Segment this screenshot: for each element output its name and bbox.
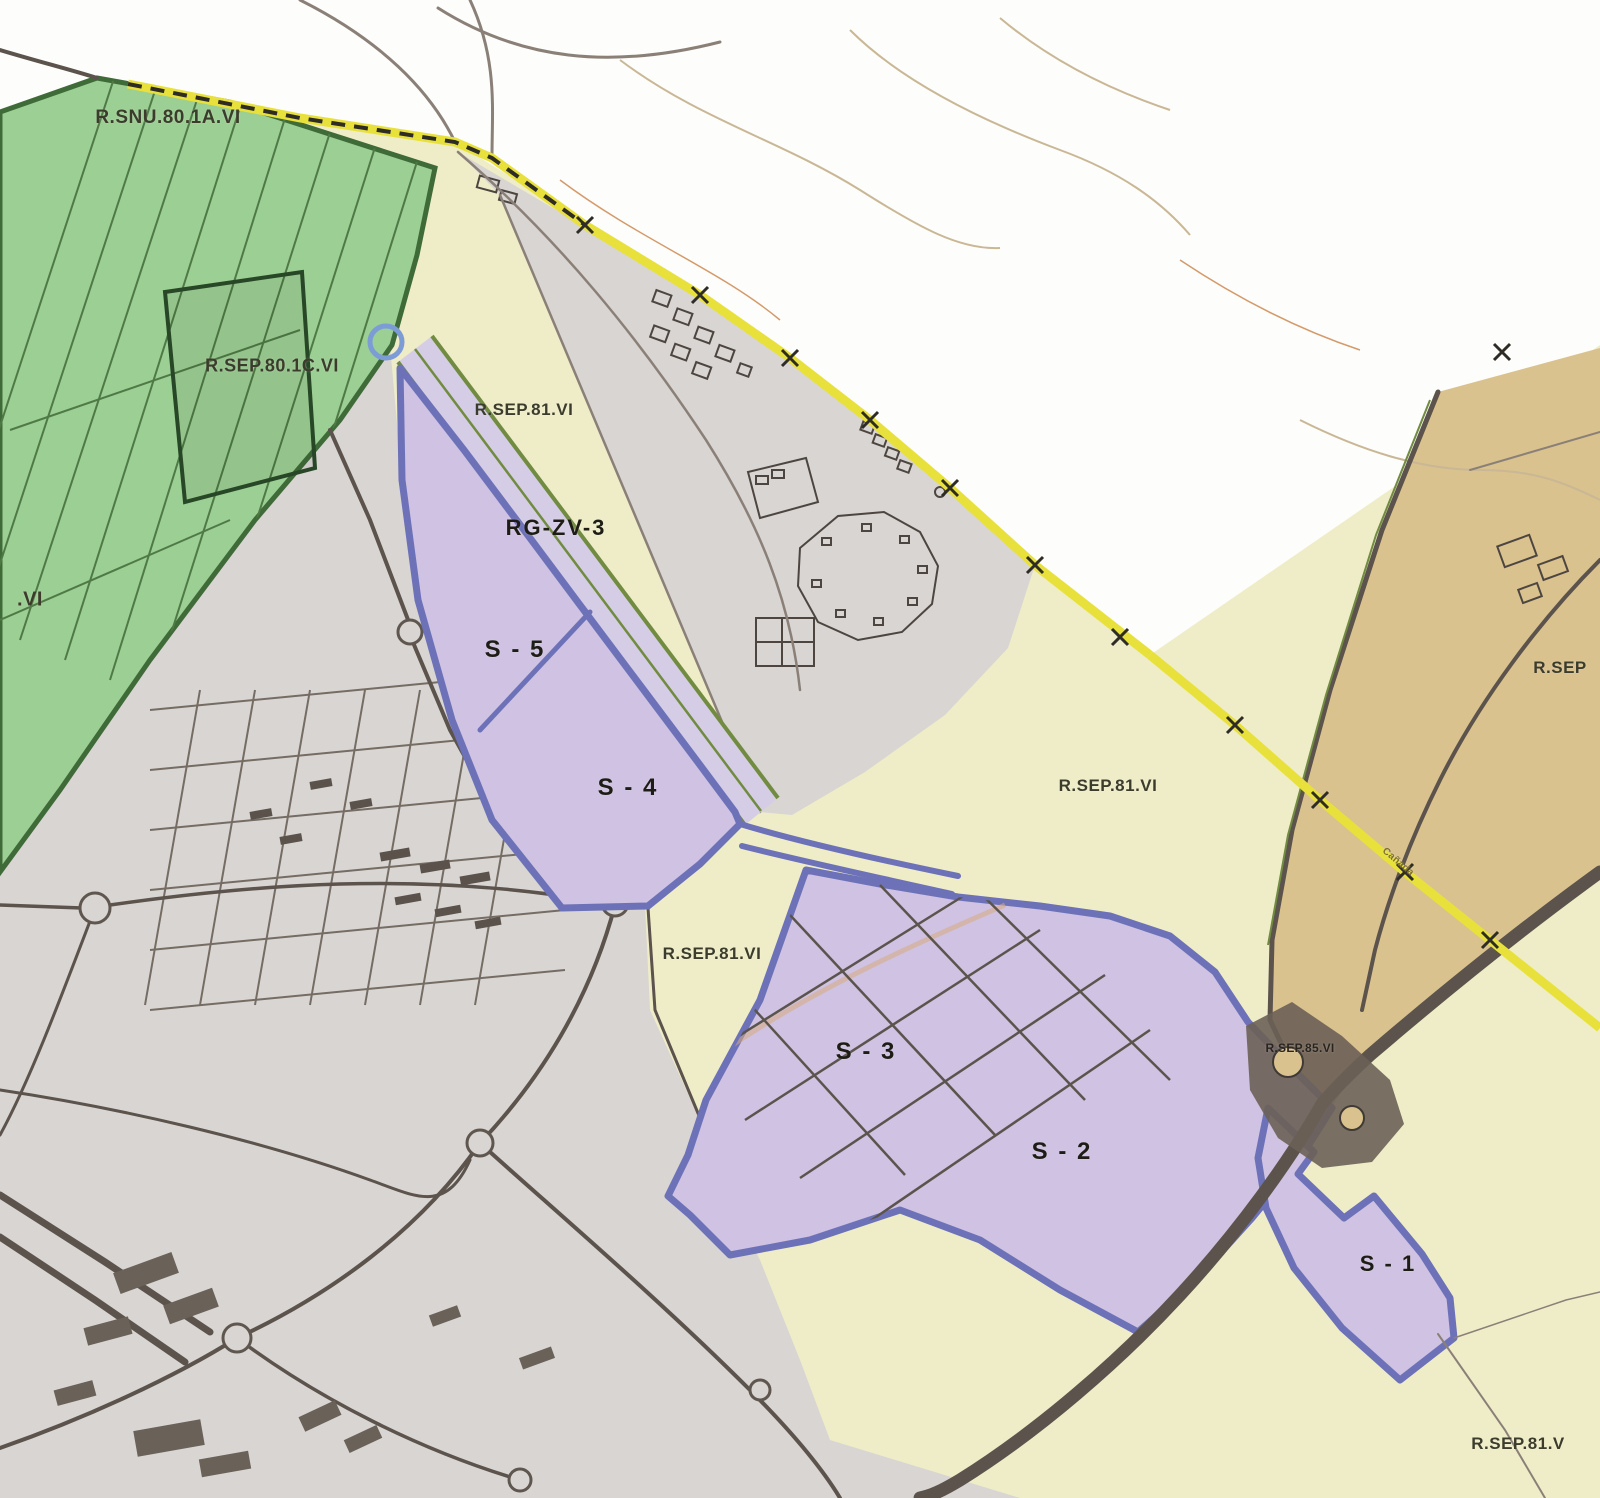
label-sector-s4: S - 4 — [598, 774, 659, 802]
label-left-edge-vi: .VI — [17, 589, 43, 612]
label-sector-s2: S - 2 — [1032, 1138, 1093, 1166]
label-sector-s1: S - 1 — [1360, 1251, 1416, 1277]
green-parcel-outline — [165, 272, 315, 502]
label-rg-zv-3: RG-ZV-3 — [506, 515, 607, 541]
label-rsep-80-1c: R.SEP.80.1C.VI — [205, 356, 339, 377]
label-rsep-81-east: R.SEP.81.VI — [1059, 776, 1158, 796]
label-rsep-right-edge: R.SEP — [1533, 658, 1587, 678]
label-sector-s5: S - 5 — [485, 636, 546, 664]
label-sector-s3: S - 3 — [836, 1038, 897, 1066]
label-rsep-85: R.SEP.85.VI — [1265, 1041, 1334, 1055]
label-rsep-81-center: R.SEP.81.VI — [663, 944, 762, 964]
planning-map: R.SNU.80.1A.VI R.SEP.80.1C.VI .VI R.SEP.… — [0, 0, 1600, 1498]
label-rsnu-80-1a: R.SNU.80.1A.VI — [95, 107, 240, 129]
label-rsep-81-southeast: R.SEP.81.V — [1471, 1434, 1565, 1454]
label-rsep-81-north: R.SEP.81.VI — [475, 400, 574, 420]
